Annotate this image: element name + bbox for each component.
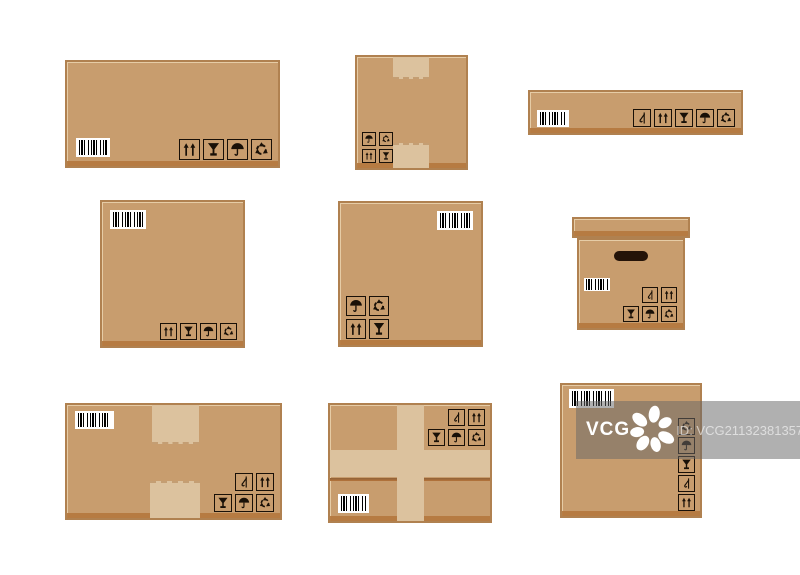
this-way-up-icon xyxy=(346,319,366,339)
symbol-row xyxy=(448,409,485,426)
fragile-icon xyxy=(623,306,639,322)
barcode-bars xyxy=(540,112,566,125)
vcg-logo-text: VCG xyxy=(586,419,630,441)
square-box xyxy=(338,201,483,347)
this-way-up-icon xyxy=(362,149,376,163)
symbol-row xyxy=(642,287,677,303)
keep-dry-icon xyxy=(642,306,658,322)
fragile-icon xyxy=(369,319,389,339)
this-way-up-icon xyxy=(661,287,677,303)
keep-dry-icon xyxy=(448,429,465,446)
boxes-illustration: VCG ID: VCG211323813579 xyxy=(0,0,800,575)
packaging-symbols xyxy=(214,473,274,512)
tape-strip xyxy=(152,405,199,444)
keep-dry-icon xyxy=(346,296,366,316)
this-way-up-icon xyxy=(256,473,274,491)
barcode xyxy=(584,278,610,291)
recycle-icon xyxy=(379,132,393,146)
fragile-icon xyxy=(675,109,693,127)
fragile-icon xyxy=(428,429,445,446)
watermark-id-text: ID: VCG211323813579 xyxy=(676,423,800,438)
symbol-row xyxy=(633,109,735,127)
recycle-icon xyxy=(251,139,272,160)
barcode xyxy=(338,494,369,513)
symbol-row xyxy=(346,296,389,316)
fragile-icon xyxy=(180,323,197,340)
recycle-icon xyxy=(468,429,485,446)
recycle-icon xyxy=(256,494,274,512)
barcode xyxy=(76,138,110,157)
box-lid xyxy=(572,217,690,238)
wide-taped-box xyxy=(65,403,282,520)
symbol-row xyxy=(346,319,389,339)
keep-dry-icon xyxy=(200,323,217,340)
packaging-symbols xyxy=(160,323,237,340)
symbol-row xyxy=(678,494,695,511)
recycle-icon xyxy=(661,306,677,322)
no-hooks-icon xyxy=(642,287,658,303)
packaging-symbols xyxy=(428,409,485,446)
this-way-up-icon xyxy=(678,494,695,511)
symbol-row xyxy=(160,323,237,340)
symbol-row xyxy=(362,149,393,163)
watermark: VCG ID: VCG211323813579 xyxy=(576,401,800,459)
symbol-row xyxy=(179,139,272,160)
cross-taped-box xyxy=(328,403,492,523)
square-taped-box xyxy=(355,55,468,170)
barcode-bars xyxy=(341,496,366,511)
fragile-icon xyxy=(203,139,224,160)
box-body xyxy=(577,238,685,330)
symbol-row xyxy=(623,306,677,322)
tape-strip xyxy=(393,57,429,79)
lid-box-with-handle xyxy=(572,217,690,330)
fragile-icon xyxy=(214,494,232,512)
barcode-bars xyxy=(78,413,111,427)
this-way-up-icon xyxy=(160,323,177,340)
barcode-bars xyxy=(113,212,143,227)
this-way-up-icon xyxy=(468,409,485,426)
square-box xyxy=(100,200,245,348)
barcode-bars xyxy=(79,140,107,155)
symbol-row xyxy=(214,494,274,512)
keep-dry-icon xyxy=(362,132,376,146)
this-way-up-icon xyxy=(654,109,672,127)
symbol-row xyxy=(235,473,274,491)
fragile-icon xyxy=(379,149,393,163)
symbol-row xyxy=(428,429,485,446)
no-hooks-icon xyxy=(448,409,465,426)
box-handle xyxy=(614,251,648,261)
recycle-icon xyxy=(220,323,237,340)
long-flat-box xyxy=(528,90,743,135)
tape-strip xyxy=(150,481,200,518)
keep-dry-icon xyxy=(235,494,253,512)
packaging-symbols xyxy=(346,296,389,339)
symbol-row xyxy=(362,132,393,146)
this-way-up-icon xyxy=(179,139,200,160)
tape-strip xyxy=(397,405,424,521)
packaging-symbols xyxy=(633,109,735,127)
recycle-icon xyxy=(717,109,735,127)
packaging-symbols xyxy=(362,132,393,163)
tape-strip xyxy=(393,143,429,168)
no-hooks-icon xyxy=(678,475,695,492)
barcode xyxy=(437,211,473,230)
barcode xyxy=(110,210,146,229)
barcode-bars xyxy=(586,279,608,290)
recycle-icon xyxy=(369,296,389,316)
symbol-row xyxy=(678,475,695,492)
barcode-bars xyxy=(440,213,470,228)
wide-closed-box xyxy=(65,60,280,168)
no-hooks-icon xyxy=(633,109,651,127)
packaging-symbols xyxy=(623,287,677,322)
keep-dry-icon xyxy=(696,109,714,127)
vcg-logo-burst-icon xyxy=(626,404,678,456)
packaging-symbols xyxy=(179,139,272,160)
keep-dry-icon xyxy=(227,139,248,160)
no-hooks-icon xyxy=(235,473,253,491)
barcode xyxy=(537,110,569,127)
barcode xyxy=(75,411,114,429)
